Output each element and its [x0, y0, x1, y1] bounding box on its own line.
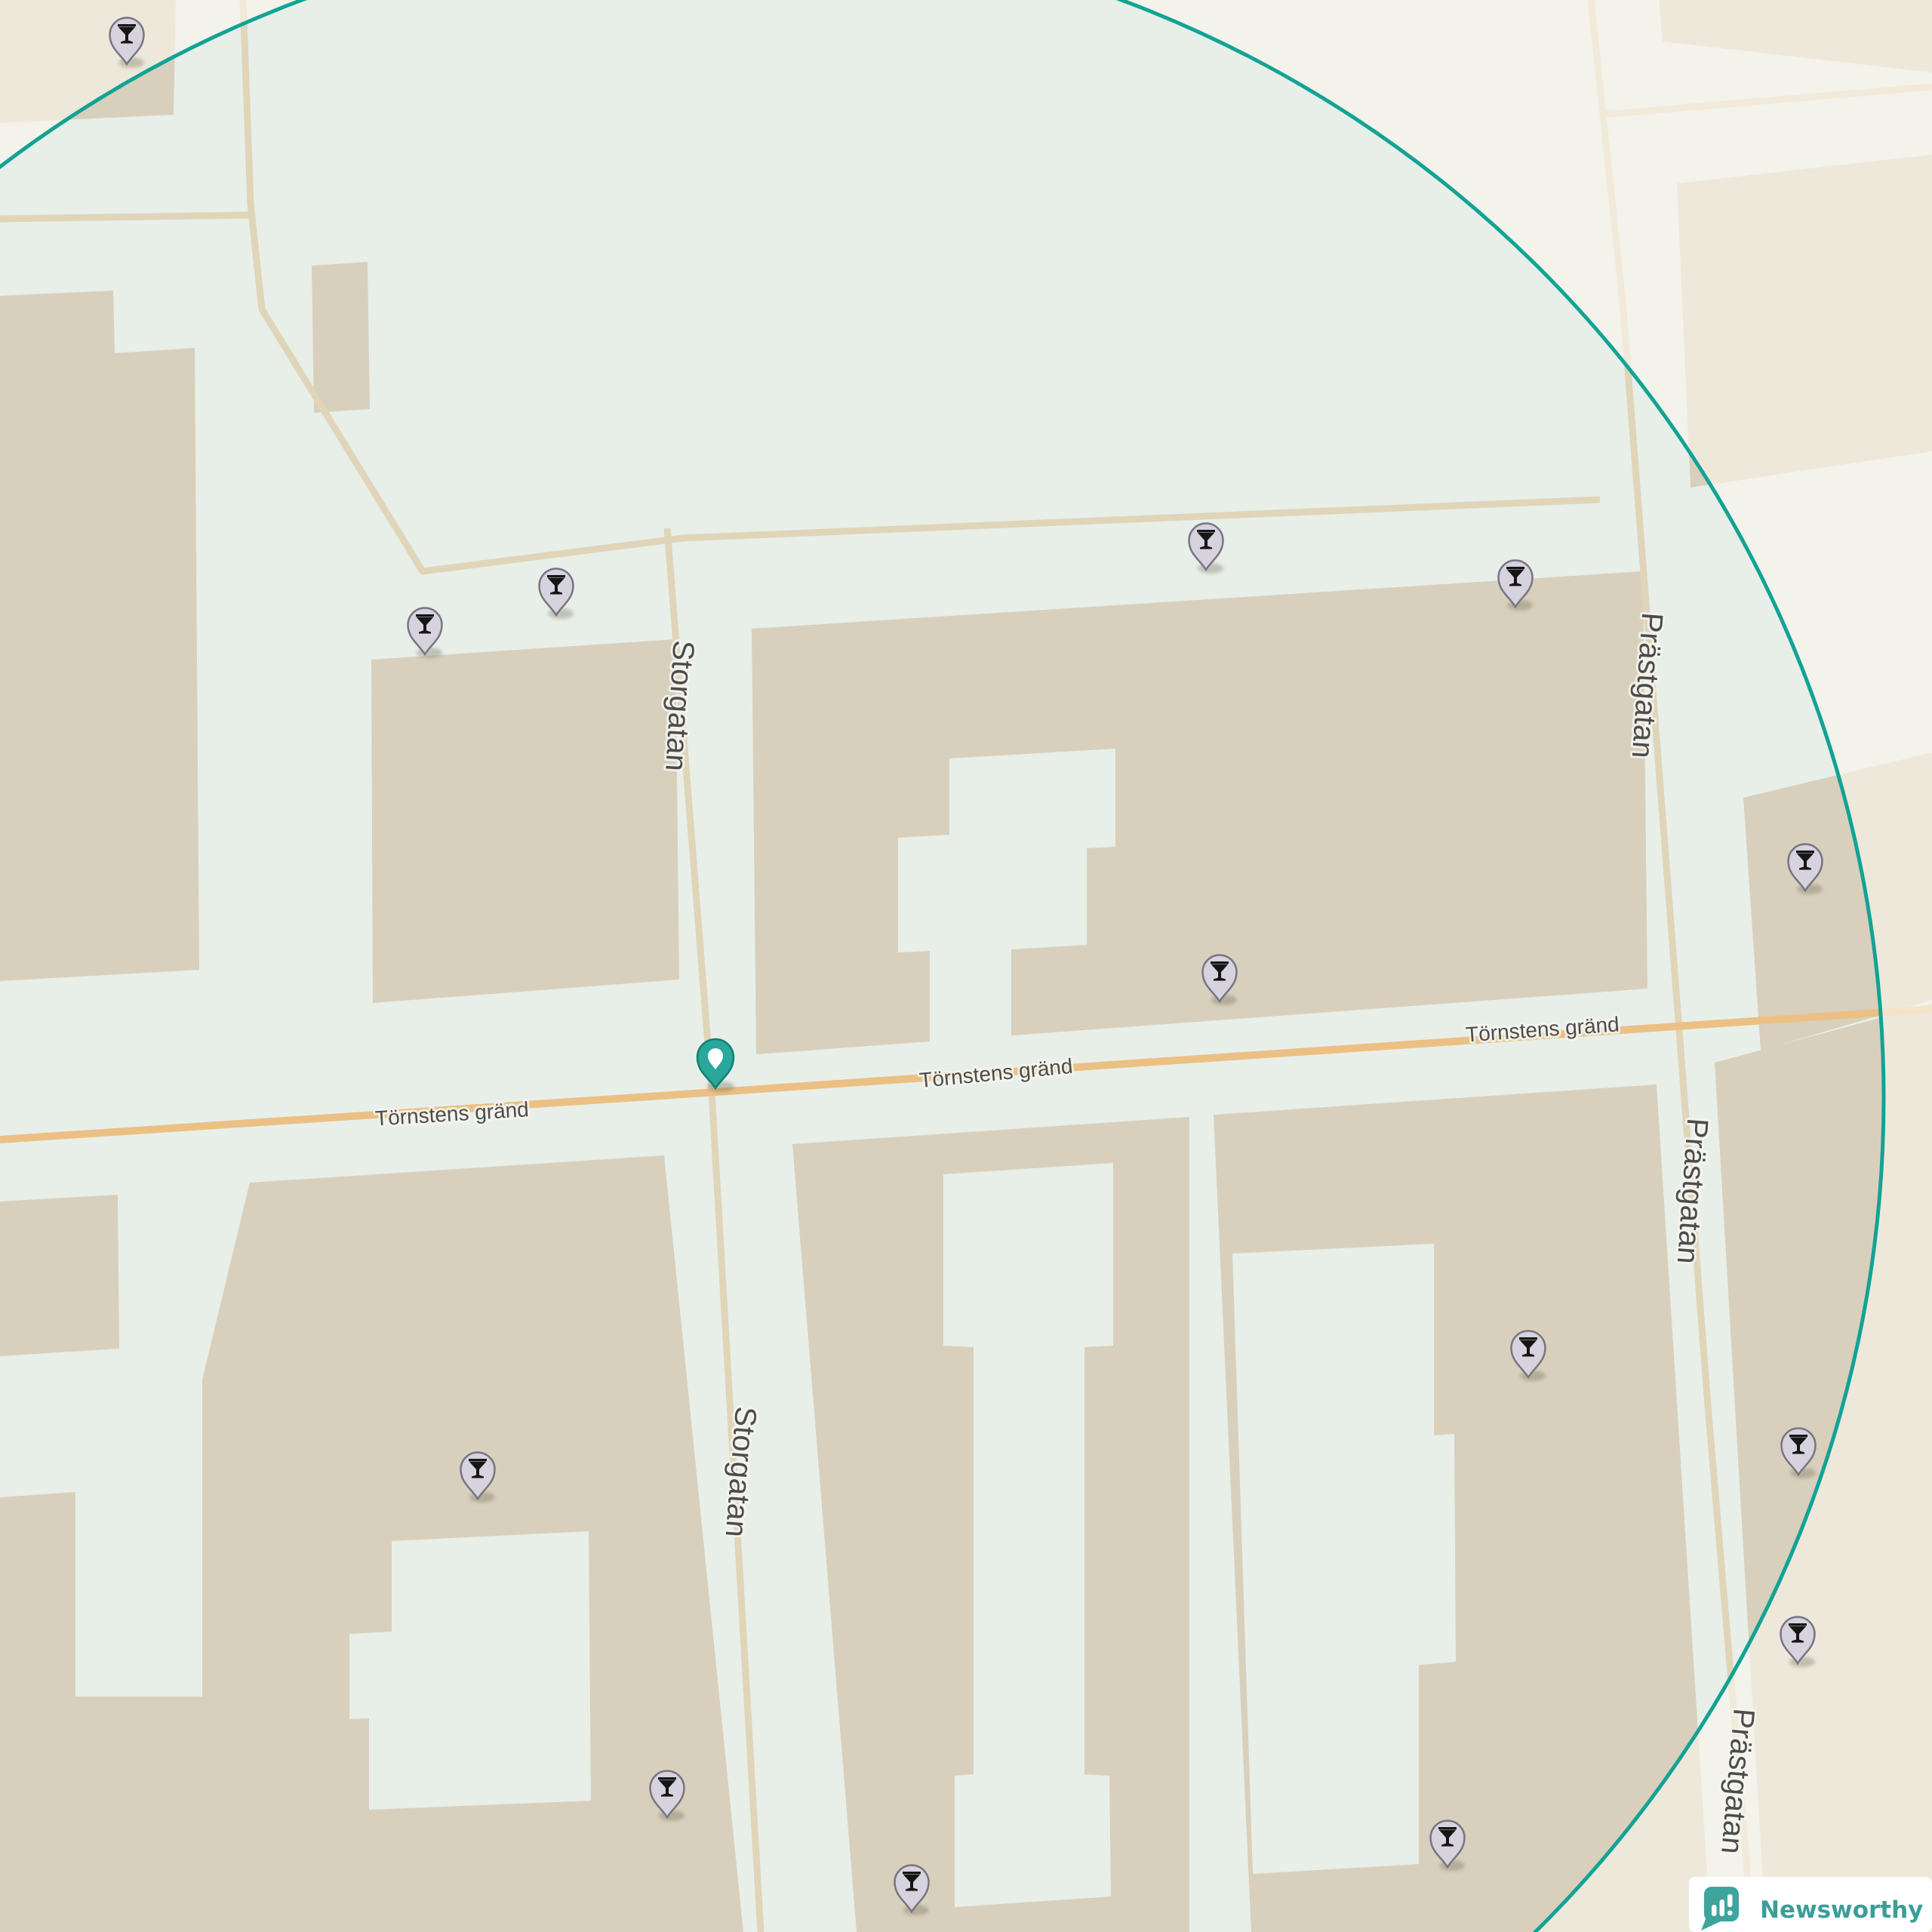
building	[312, 262, 370, 413]
building	[0, 291, 199, 981]
building	[371, 639, 679, 1003]
road-minor	[0, 215, 249, 219]
building	[752, 571, 1647, 1054]
brand-name: Newsworthy	[1760, 1897, 1923, 1924]
map-page: Törnstens grändTörnstens grändTörnstens …	[0, 0, 1932, 1932]
map-canvas[interactable]: Törnstens grändTörnstens grändTörnstens …	[0, 0, 1932, 1932]
building	[0, 1195, 119, 1356]
brand-attribution[interactable]: Newsworthy	[1689, 1877, 1932, 1932]
